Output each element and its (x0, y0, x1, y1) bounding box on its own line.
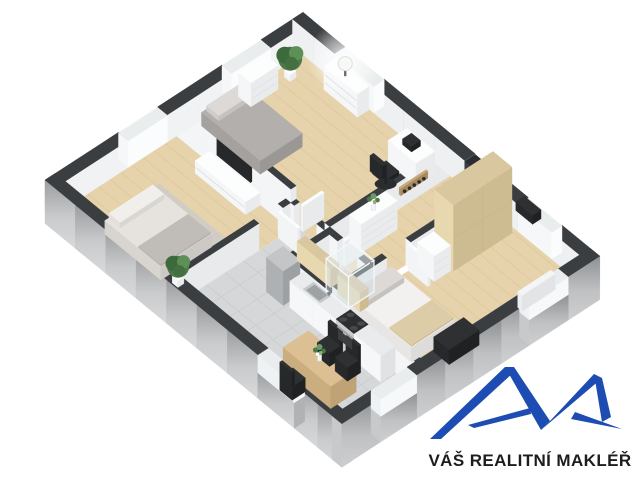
brand-logo: VÁŠ REALITNÍ MAKLÉŘ (424, 364, 636, 476)
logo-text: VÁŠ REALITNÍ MAKLÉŘ (428, 451, 631, 470)
logo-mark-icon (430, 367, 622, 439)
floorplan-image: VÁŠ REALITNÍ MAKLÉŘ (0, 0, 640, 480)
table-lamp (307, 21, 383, 97)
